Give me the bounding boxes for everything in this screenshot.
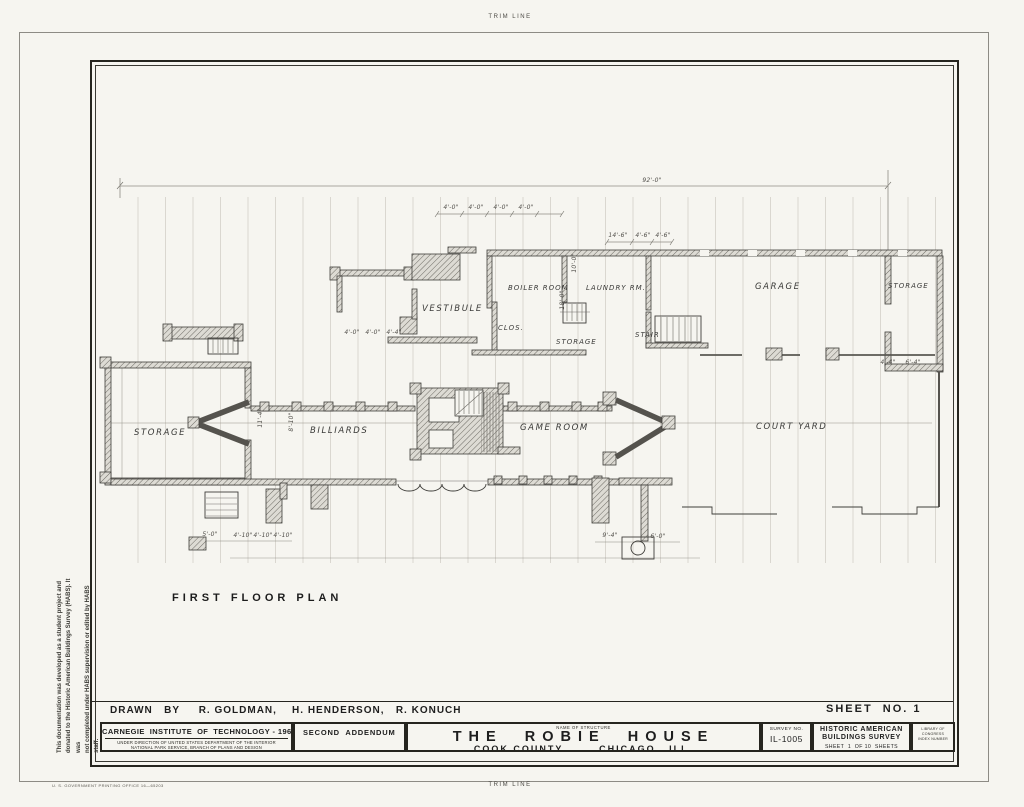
survey-no-value: IL-1005 [763, 732, 810, 744]
habs-sheet: TRIM LINE TRIM LINE This documentation w… [0, 0, 1024, 807]
dim: 18'-0" [559, 290, 566, 309]
room-label-stair: STAIR [635, 331, 660, 339]
dim: 4'-0" [493, 204, 508, 211]
room-label-storage-west: STORAGE [134, 428, 186, 438]
habs-line1: HISTORIC AMERICAN [814, 724, 909, 734]
title-block-survey-no: SURVEY NO. IL-1005 [761, 722, 812, 752]
dim: 4'-10" [273, 532, 292, 539]
room-label-closet: CLOS. [498, 324, 524, 332]
loc-line1: LIBRARY OF CONGRESS [913, 724, 953, 737]
addendum-label: SECOND ADDENDUM [295, 724, 404, 737]
dim: 6'-4" [905, 359, 920, 366]
dim: 4'-0" [468, 204, 483, 211]
sheet-no: SHEET NO. 1 [826, 703, 922, 715]
institution-divider [105, 738, 288, 739]
room-label-storage-ne: STORAGE [888, 282, 929, 290]
floor-plan-drawing: STORAGE BILLIARDS GAME ROOM COURT YARD V… [0, 0, 1024, 807]
dim: 9'-4" [602, 532, 617, 539]
room-label-court-yard: COURT YARD [756, 422, 827, 432]
dim: 4'-0" [518, 204, 533, 211]
dim-overall: 92'-0" [642, 177, 661, 184]
dim: 6'-0" [650, 533, 665, 540]
dim: 4'-0" [365, 329, 380, 336]
institution-name: CARNEGIE INSTITUTE OF TECHNOLOGY - 1962 [102, 724, 291, 736]
structure-location: COOK COUNTY CHICAGO , ILL. [408, 744, 759, 752]
dim: 4'-0" [344, 329, 359, 336]
dim: 4'-6" [655, 232, 670, 239]
structure-name: THE ROBIE HOUSE [408, 730, 759, 744]
survey-no-label: SURVEY NO. [763, 724, 810, 732]
room-label-garage: GARAGE [755, 282, 801, 292]
room-label-laundry-rm: LAUNDRY RM. [586, 284, 646, 292]
room-label-billiards: BILLIARDS [310, 426, 368, 436]
title-block-institution: CARNEGIE INSTITUTE OF TECHNOLOGY - 1962 … [100, 722, 293, 752]
dim: 10'-0" [571, 253, 578, 272]
institution-sub2: NATIONAL PARK SERVICE, BRANCH OF PLANS A… [102, 745, 291, 750]
title-block-addendum: SECOND ADDENDUM [293, 722, 406, 752]
dim: 4'-4" [880, 359, 895, 366]
dim: 4'-0" [443, 204, 458, 211]
title-block-divider [92, 701, 953, 702]
dim: 4'-10" [253, 532, 272, 539]
room-label-game-room: GAME ROOM [520, 423, 589, 433]
title-block-structure: NAME OF STRUCTURE THE ROBIE HOUSE COOK C… [406, 722, 761, 752]
title-block-loc-index: LIBRARY OF CONGRESS INDEX NUMBER [911, 722, 955, 752]
habs-sheet-of: SHEET 1 OF 10 SHEETS [814, 742, 909, 750]
title-block-habs: HISTORIC AMERICAN BUILDINGS SURVEY SHEET… [812, 722, 911, 752]
drawn-by: DRAWN BY R. GOLDMAN, H. HENDERSON, R. KO… [110, 705, 462, 716]
dim: 5'-0" [202, 531, 217, 538]
dim: 4'-6" [635, 232, 650, 239]
room-label-vestibule: VESTIBULE [422, 304, 483, 314]
dim: 4'-4" [386, 329, 401, 336]
dim: 14'-6" [608, 232, 627, 239]
dim: 8'-10" [288, 412, 295, 431]
dim: 11'-4" [257, 408, 264, 427]
plan-title: FIRST FLOOR PLAN [172, 592, 342, 604]
room-label-storage-mid: STORAGE [556, 338, 597, 346]
loc-line2: INDEX NUMBER [913, 737, 953, 742]
dim: 4'-10" [233, 532, 252, 539]
habs-line2: BUILDINGS SURVEY [814, 734, 909, 742]
